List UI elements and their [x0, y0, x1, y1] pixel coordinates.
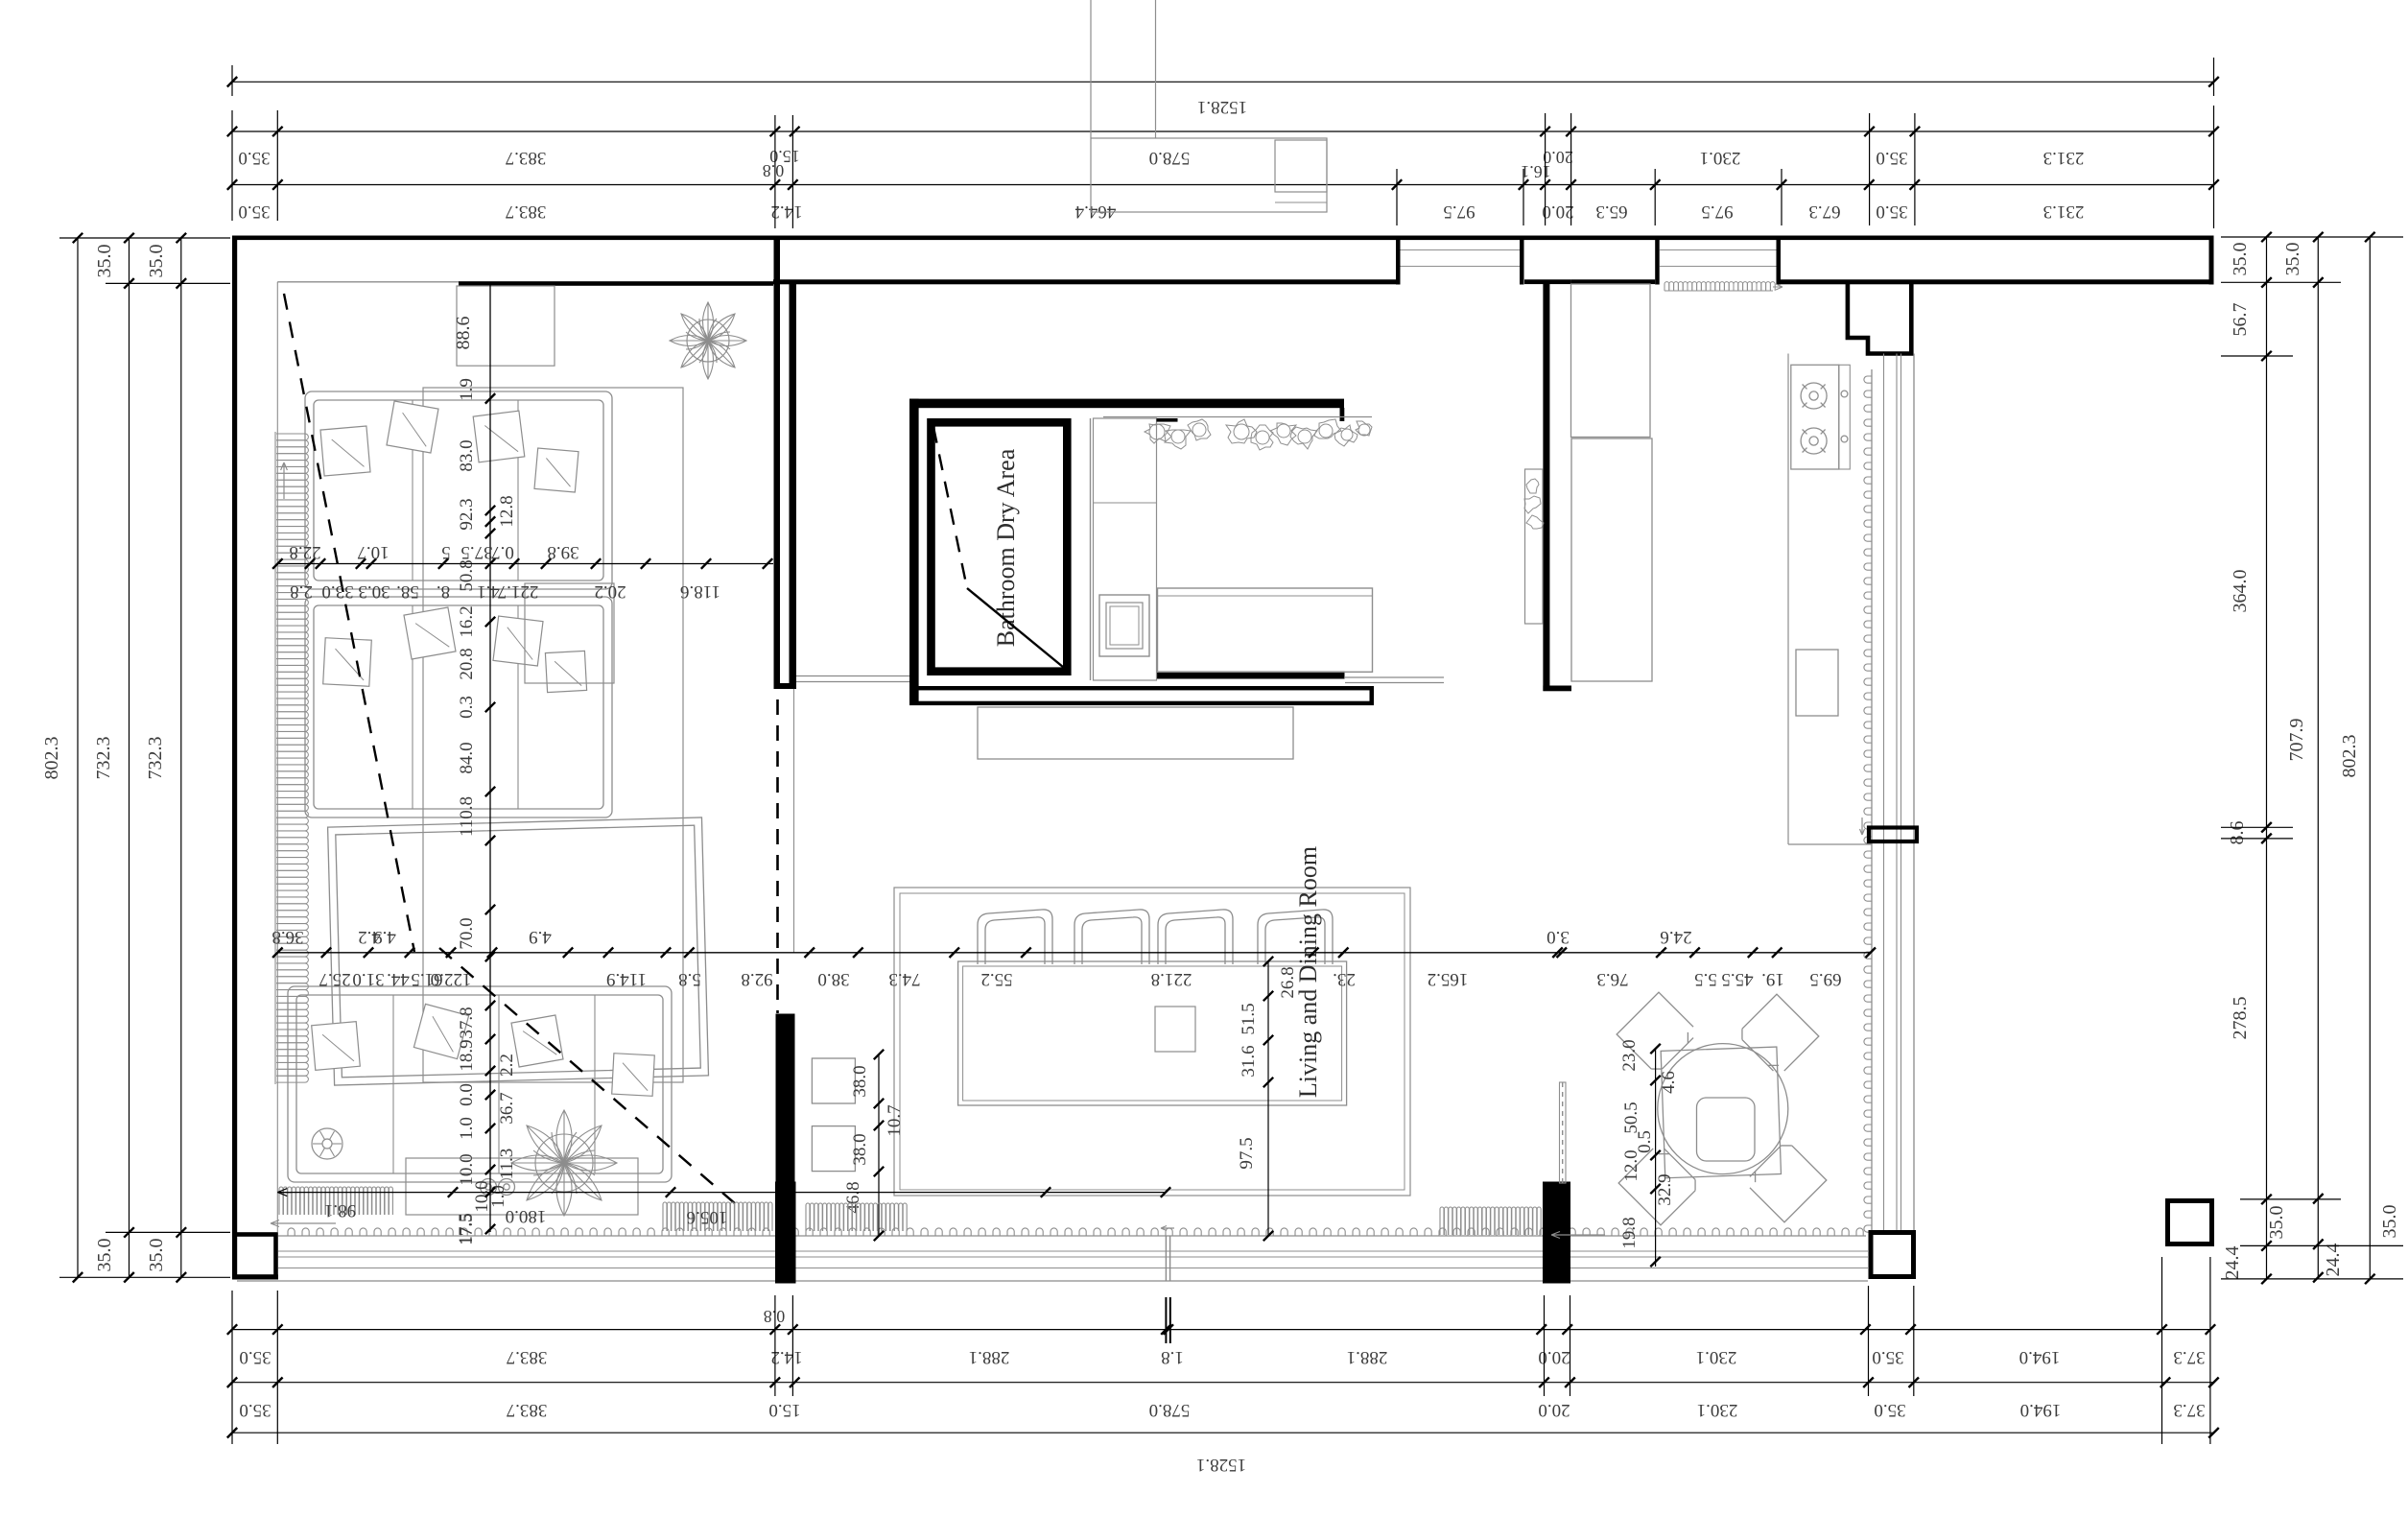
svg-text:3.0: 3.0	[1546, 927, 1570, 947]
svg-text:24.4: 24.4	[2222, 1246, 2243, 1280]
svg-text:231.3: 231.3	[2043, 148, 2085, 168]
svg-text:2.2: 2.2	[497, 1054, 517, 1077]
svg-text:231.3: 231.3	[2043, 201, 2085, 222]
svg-text:707.9: 707.9	[2286, 719, 2307, 762]
svg-text:97.5: 97.5	[1443, 201, 1475, 222]
svg-text:25.7: 25.7	[319, 969, 350, 989]
svg-text:35.0: 35.0	[239, 1347, 271, 1367]
svg-text:37.5: 37.5	[460, 542, 492, 562]
svg-text:38.0: 38.0	[817, 969, 849, 989]
svg-text:74.3: 74.3	[888, 969, 920, 989]
svg-text:98.1: 98.1	[324, 1200, 356, 1220]
svg-text:84.0: 84.0	[457, 742, 477, 773]
svg-text:51.5: 51.5	[1239, 1003, 1259, 1034]
svg-text:732.3: 732.3	[145, 737, 166, 780]
svg-text:67.3: 67.3	[1808, 201, 1840, 222]
svg-text:35.0: 35.0	[2266, 1206, 2287, 1240]
svg-text:35.0: 35.0	[1874, 1400, 1905, 1420]
svg-text:383.7: 383.7	[506, 148, 547, 168]
svg-text:230.1: 230.1	[1700, 148, 1741, 168]
svg-text:578.0: 578.0	[1149, 1400, 1191, 1420]
svg-text:12.8: 12.8	[497, 495, 517, 527]
svg-text:1.9: 1.9	[457, 378, 477, 401]
svg-text:35.0: 35.0	[1872, 1347, 1903, 1367]
svg-text:70.0: 70.0	[457, 917, 477, 949]
svg-text:35.0: 35.0	[239, 1400, 271, 1420]
svg-text:18.9: 18.9	[457, 1039, 477, 1071]
svg-text:802.3: 802.3	[2339, 735, 2360, 778]
svg-text:15.0: 15.0	[768, 1400, 800, 1420]
svg-text:38.0: 38.0	[850, 1133, 870, 1165]
svg-text:35.0: 35.0	[146, 245, 167, 278]
svg-text:35.0: 35.0	[1876, 148, 1907, 168]
svg-text:50.5: 50.5	[1621, 1102, 1641, 1133]
svg-text:1528.1: 1528.1	[1197, 97, 1247, 117]
svg-text:5.5: 5.5	[1694, 969, 1717, 989]
svg-text:383.7: 383.7	[507, 1347, 548, 1367]
svg-text:230.1: 230.1	[1696, 1347, 1737, 1367]
svg-text:4.9: 4.9	[529, 927, 552, 947]
svg-text:364.0: 364.0	[2230, 570, 2251, 613]
svg-text:92.3: 92.3	[457, 498, 477, 530]
svg-text:288.1: 288.1	[969, 1347, 1010, 1367]
svg-text:732.3: 732.3	[93, 737, 114, 780]
svg-text:383.7: 383.7	[507, 1400, 548, 1420]
svg-text:1.0: 1.0	[488, 1185, 508, 1208]
svg-text:44.: 44.	[387, 969, 410, 989]
svg-text:20.0: 20.0	[1538, 1347, 1570, 1367]
svg-text:35.0: 35.0	[94, 1239, 115, 1272]
svg-text:11.3: 11.3	[497, 1149, 517, 1180]
svg-text:180.0: 180.0	[506, 1206, 547, 1226]
svg-text:Living and Dining Room: Living and Dining Room	[1294, 846, 1322, 1098]
svg-text:97.5: 97.5	[1701, 201, 1733, 222]
svg-text:92.8: 92.8	[741, 969, 772, 989]
svg-text:19.: 19.	[1761, 969, 1784, 989]
svg-text:118.6: 118.6	[680, 581, 720, 602]
svg-text:5: 5	[441, 542, 451, 562]
svg-text:4.1: 4.1	[477, 581, 500, 602]
svg-text:36.7: 36.7	[497, 1092, 517, 1124]
svg-text:88.6: 88.6	[453, 317, 474, 350]
svg-text:1528.1: 1528.1	[1196, 1455, 1246, 1475]
svg-text:24.4: 24.4	[2323, 1244, 2344, 1277]
svg-text:56.7: 56.7	[2230, 303, 2251, 337]
svg-text:0.8: 0.8	[763, 161, 785, 180]
svg-text:194.0: 194.0	[2020, 1400, 2062, 1420]
svg-text:4.9: 4.9	[373, 927, 396, 947]
svg-text:31.0: 31.0	[352, 969, 384, 989]
svg-text:17.5: 17.5	[456, 1213, 476, 1244]
svg-text:383.7: 383.7	[506, 201, 547, 222]
svg-text:802.3: 802.3	[41, 737, 62, 780]
svg-text:32.9: 32.9	[1655, 1173, 1675, 1205]
svg-text:2.8: 2.8	[290, 581, 313, 602]
svg-text:16.1: 16.1	[1521, 162, 1551, 181]
svg-text:37.8: 37.8	[457, 1007, 477, 1038]
svg-text:221.8: 221.8	[1151, 969, 1192, 989]
svg-text:35.0: 35.0	[1876, 201, 1907, 222]
svg-text:38.0: 38.0	[850, 1065, 870, 1097]
svg-text:97.5: 97.5	[1237, 1137, 1257, 1169]
svg-text:19.8: 19.8	[1619, 1217, 1640, 1248]
svg-text:20.0: 20.0	[1542, 201, 1573, 222]
svg-text:35.0: 35.0	[238, 148, 270, 168]
svg-text:23.0: 23.0	[1619, 1039, 1640, 1071]
svg-text:10.7: 10.7	[885, 1104, 905, 1136]
svg-text:16.2: 16.2	[457, 605, 477, 637]
svg-text:39.8: 39.8	[547, 542, 578, 562]
svg-text:50.8: 50.8	[457, 559, 477, 591]
svg-text:35.0: 35.0	[94, 245, 115, 278]
svg-text:578.0: 578.0	[1149, 148, 1191, 168]
svg-text:35.0: 35.0	[2230, 243, 2251, 276]
svg-text:35.0: 35.0	[2282, 243, 2303, 276]
svg-text:22.8: 22.8	[289, 542, 320, 562]
svg-text:35.0: 35.0	[2379, 1205, 2400, 1239]
svg-text:288.1: 288.1	[1347, 1347, 1388, 1367]
svg-text:1.0: 1.0	[457, 1117, 477, 1140]
svg-text:0.0: 0.0	[457, 1083, 477, 1106]
svg-text:20.2: 20.2	[594, 581, 626, 602]
svg-text:35.0: 35.0	[238, 201, 270, 222]
svg-text:35.0: 35.0	[146, 1239, 167, 1272]
svg-text:278.5: 278.5	[2230, 997, 2251, 1040]
svg-text:26.8: 26.8	[1278, 966, 1298, 998]
svg-text:65.3: 65.3	[1595, 201, 1627, 222]
svg-text:24.6: 24.6	[1660, 927, 1691, 947]
svg-text:37.3: 37.3	[2173, 1400, 2205, 1420]
svg-text:37.3: 37.3	[2173, 1347, 2205, 1367]
svg-text:165.2: 165.2	[1428, 969, 1469, 989]
svg-text:194.0: 194.0	[2019, 1347, 2061, 1367]
svg-text:0.8: 0.8	[764, 1307, 786, 1326]
svg-text:23.: 23.	[1333, 969, 1356, 989]
svg-text:1.8: 1.8	[1161, 1347, 1184, 1367]
svg-text:20.8: 20.8	[457, 648, 477, 679]
svg-text:30.3: 30.3	[358, 581, 390, 602]
svg-text:69.5: 69.5	[1809, 969, 1841, 989]
svg-text:31.6: 31.6	[1239, 1045, 1259, 1077]
svg-text:0.7: 0.7	[491, 542, 514, 562]
svg-text:33.0: 33.0	[321, 581, 353, 602]
svg-text:8.6: 8.6	[2227, 821, 2248, 845]
svg-text:0.5: 0.5	[1635, 1130, 1655, 1153]
svg-text:55.2: 55.2	[980, 969, 1012, 989]
svg-text:58.: 58.	[396, 581, 419, 602]
svg-text:122.0: 122.0	[431, 969, 472, 989]
svg-text:4.6: 4.6	[1659, 1071, 1679, 1094]
svg-text:230.1: 230.1	[1697, 1400, 1738, 1420]
svg-text:12.0: 12.0	[1621, 1149, 1641, 1181]
svg-text:Bathroom Dry Area: Bathroom Dry Area	[992, 448, 1020, 647]
svg-text:36.8: 36.8	[271, 927, 303, 947]
svg-text:114.9: 114.9	[606, 969, 647, 989]
svg-text:10.7: 10.7	[357, 542, 389, 562]
svg-text:83.0: 83.0	[457, 439, 477, 471]
svg-text:110.8: 110.8	[457, 796, 477, 837]
svg-text:221.7: 221.7	[498, 581, 539, 602]
svg-text:105.6: 105.6	[687, 1207, 728, 1227]
svg-text:0.3: 0.3	[457, 696, 477, 719]
svg-text:76.3: 76.3	[1596, 969, 1628, 989]
svg-text:45.5: 45.5	[1721, 969, 1753, 989]
svg-text:5.8: 5.8	[678, 969, 701, 989]
svg-text:20.0: 20.0	[1538, 1400, 1570, 1420]
svg-text:8.: 8.	[437, 581, 450, 602]
